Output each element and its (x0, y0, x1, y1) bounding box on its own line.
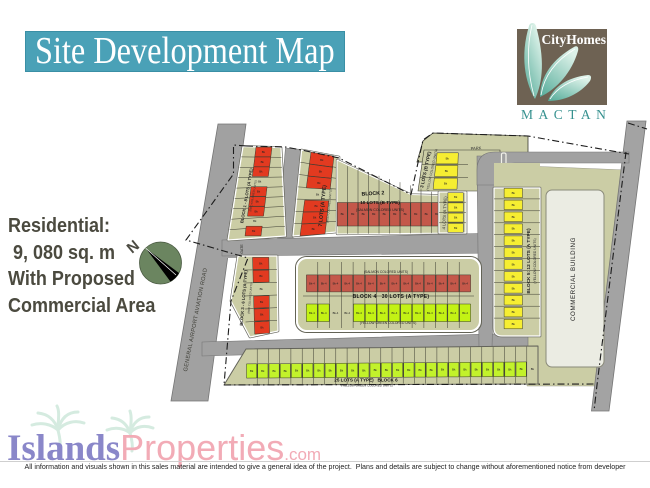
svg-text:(SALMON COLORED UNITS): (SALMON COLORED UNITS) (356, 208, 404, 212)
svg-text:Bk-4: Bk-4 (415, 281, 421, 285)
svg-text:Bk-4: Bk-4 (344, 311, 350, 315)
svg-text:Bk-4: Bk-4 (450, 281, 456, 285)
svg-text:COMMERCIAL BUILDING: COMMERCIAL BUILDING (570, 237, 577, 321)
svg-text:Bk-4: Bk-4 (403, 281, 409, 285)
svg-text:Bk-4: Bk-4 (333, 281, 339, 285)
svg-text:GATE: GATE (240, 244, 244, 254)
svg-text:BLOCK 2: BLOCK 2 (361, 190, 384, 197)
svg-text:Bk-4: Bk-4 (333, 311, 339, 315)
svg-text:Bk-4: Bk-4 (309, 311, 315, 315)
svg-text:(YELLOW GREEN COLORED UNITS): (YELLOW GREEN COLORED UNITS) (360, 321, 417, 325)
svg-text:Bk-4: Bk-4 (392, 281, 398, 285)
svg-text:(SALMON COLORED UNITS): (SALMON COLORED UNITS) (364, 270, 408, 274)
svg-text:Bk-4: Bk-4 (356, 311, 362, 315)
svg-text:Bk-4: Bk-4 (392, 311, 398, 315)
svg-text:Bk-4: Bk-4 (450, 311, 456, 315)
svg-text:Bk-4: Bk-4 (415, 311, 421, 315)
svg-text:Bk-4: Bk-4 (368, 281, 374, 285)
svg-text:BLOCK 4 30 LOTS (A TYPE): BLOCK 4 30 LOTS (A TYPE) (353, 294, 430, 300)
svg-text:Bk-4: Bk-4 (321, 281, 327, 285)
svg-text:Bk-4: Bk-4 (439, 281, 445, 285)
svg-text:Bk-4: Bk-4 (368, 311, 374, 315)
svg-text:Bk-4: Bk-4 (309, 281, 315, 285)
svg-text:Bk-4: Bk-4 (427, 311, 433, 315)
svg-text:Bk-4: Bk-4 (462, 311, 468, 315)
svg-text:Bk-4: Bk-4 (344, 281, 350, 285)
svg-text:Bk-4: Bk-4 (321, 311, 327, 315)
svg-text:25 LOTS (A TYPE) BLOCK 6: 25 LOTS (A TYPE) BLOCK 6 (334, 378, 398, 383)
svg-text:Bk-4: Bk-4 (380, 311, 386, 315)
svg-text:Bk-4: Bk-4 (403, 311, 409, 315)
svg-text:Bk-4: Bk-4 (427, 281, 433, 285)
svg-text:Bk-4: Bk-4 (462, 281, 468, 285)
svg-text:Bk-4: Bk-4 (356, 281, 362, 285)
svg-text:10 LOTS (B TYPE): 10 LOTS (B TYPE) (360, 200, 400, 205)
svg-text:(YELLOW COLORED UNITS): (YELLOW COLORED UNITS) (533, 238, 537, 283)
svg-text:Bk-4: Bk-4 (439, 311, 445, 315)
svg-text:N: N (124, 237, 143, 257)
svg-text:Bk-4: Bk-4 (380, 281, 386, 285)
svg-text:BLOCK 5: 12 LOTS (A TYPE): BLOCK 5: 12 LOTS (A TYPE) (526, 228, 532, 294)
